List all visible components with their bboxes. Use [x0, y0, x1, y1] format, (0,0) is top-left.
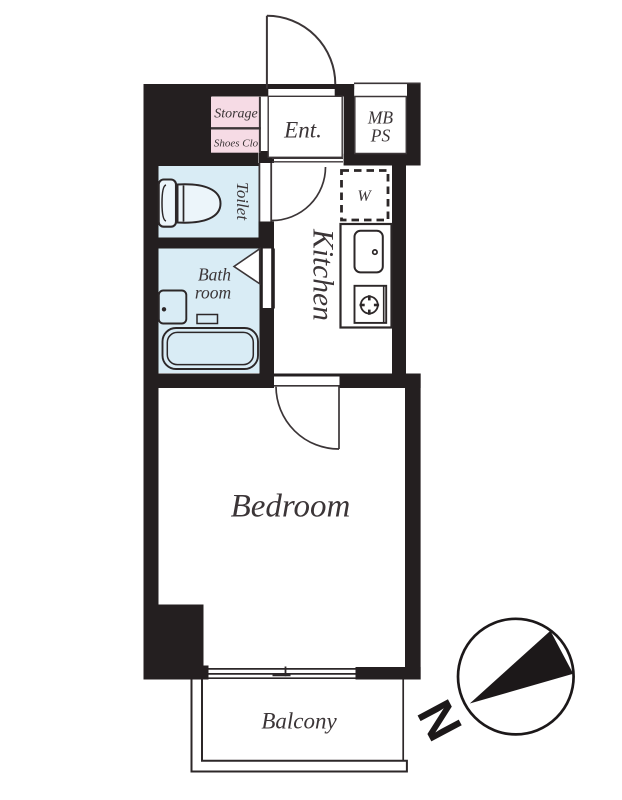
svg-text:Shoes Clo: Shoes Clo — [214, 138, 259, 150]
svg-text:MB: MB — [367, 108, 394, 128]
svg-text:Bedroom: Bedroom — [231, 489, 351, 525]
svg-text:Bath: Bath — [198, 265, 231, 285]
svg-text:room: room — [195, 283, 231, 303]
svg-text:Storage: Storage — [214, 107, 258, 122]
svg-text:PS: PS — [370, 126, 391, 146]
svg-text:Toilet: Toilet — [233, 182, 252, 221]
svg-text:W: W — [357, 188, 372, 205]
svg-text:Ent.: Ent. — [283, 118, 322, 143]
svg-text:Kitchen: Kitchen — [307, 228, 339, 321]
svg-text:Balcony: Balcony — [261, 708, 337, 733]
